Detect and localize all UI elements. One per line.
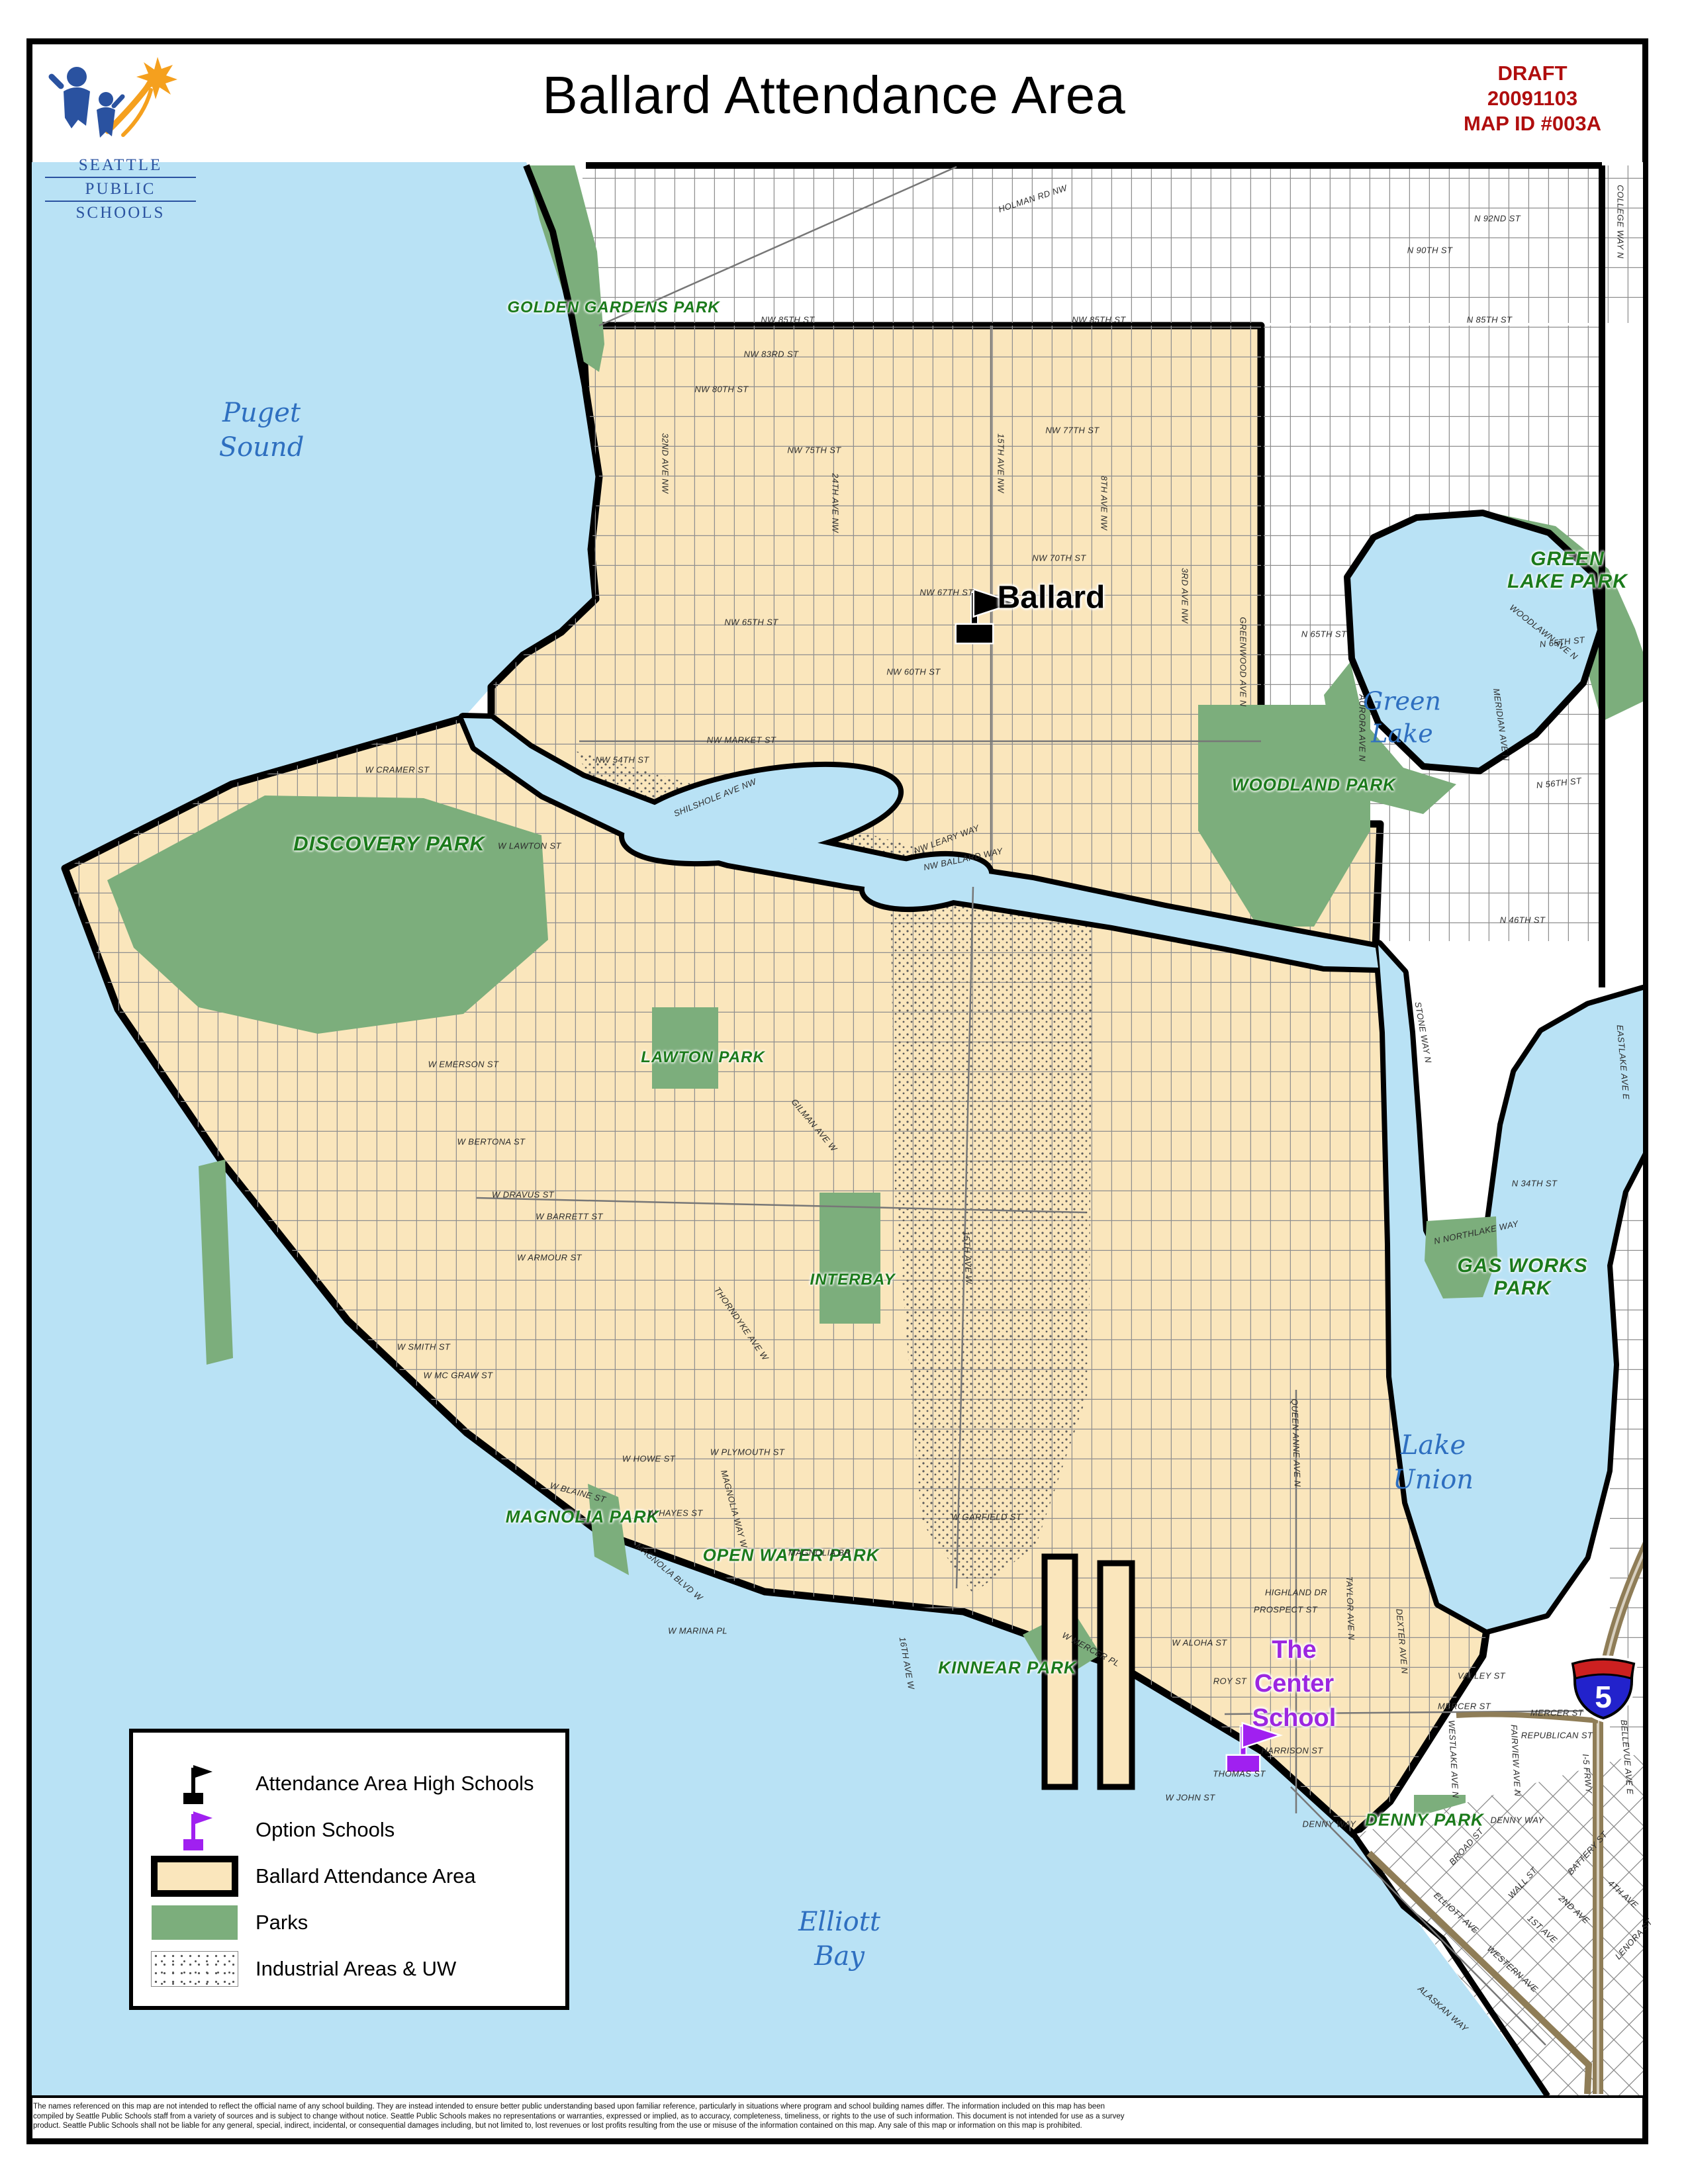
draft-stamp: DRAFT 20091103 MAP ID #003A xyxy=(1423,61,1642,136)
logo-text-public: PUBLIC xyxy=(45,178,196,202)
legend-row-industrial: Industrial Areas & UW xyxy=(133,1946,565,1992)
legend-row-parks: Parks xyxy=(133,1899,565,1946)
attendance-area-swatch xyxy=(133,1856,256,1897)
option-school-flag-icon xyxy=(133,1809,256,1851)
legend: Attendance Area High Schools Option Scho… xyxy=(129,1729,569,2010)
draft-date: 20091103 xyxy=(1423,86,1642,111)
logo-text-seattle: SEATTLE xyxy=(45,154,196,178)
map-page: 5 xyxy=(0,0,1688,2184)
interstate-5-shield: 5 xyxy=(1573,1659,1634,1718)
logo-figures-icon xyxy=(45,52,197,151)
center-school-label: The Center School xyxy=(1252,1633,1336,1735)
draft-map-id: MAP ID #003A xyxy=(1423,111,1642,136)
attendance-high-school-flag-icon xyxy=(133,1762,256,1805)
legend-label-industrial: Industrial Areas & UW xyxy=(256,1957,456,1981)
disclaimer-line-1: The names referenced on this map are not… xyxy=(33,2102,1643,2112)
pier-east xyxy=(1100,1563,1132,1787)
ballard-high-school-label: Ballard xyxy=(998,580,1105,616)
shield-number: 5 xyxy=(1595,1680,1612,1714)
legend-label-high-schools: Attendance Area High Schools xyxy=(256,1772,534,1796)
disclaimer-line-3: product. Seattle Public Schools shall no… xyxy=(33,2121,1643,2131)
seattle-public-schools-logo: SEATTLE PUBLIC SCHOOLS xyxy=(45,52,211,224)
disclaimer-line-2: compiled by Seattle Public Schools staff… xyxy=(33,2112,1643,2122)
legend-row-high-schools: Attendance Area High Schools xyxy=(133,1760,565,1807)
parks-swatch xyxy=(133,1905,256,1940)
legend-label-parks: Parks xyxy=(256,1911,308,1934)
page-title: Ballard Attendance Area xyxy=(371,65,1297,126)
industrial-swatch xyxy=(133,1951,256,1987)
draft-label: DRAFT xyxy=(1423,61,1642,86)
legend-label-attendance-area: Ballard Attendance Area xyxy=(256,1864,476,1888)
disclaimer-text: The names referenced on this map are not… xyxy=(33,2102,1643,2131)
pier-west xyxy=(1045,1557,1075,1787)
legend-row-option-schools: Option Schools xyxy=(133,1807,565,1853)
legend-row-attendance-area: Ballard Attendance Area xyxy=(133,1853,565,1899)
legend-label-option-schools: Option Schools xyxy=(256,1818,395,1842)
logo-text-schools: SCHOOLS xyxy=(45,202,196,224)
